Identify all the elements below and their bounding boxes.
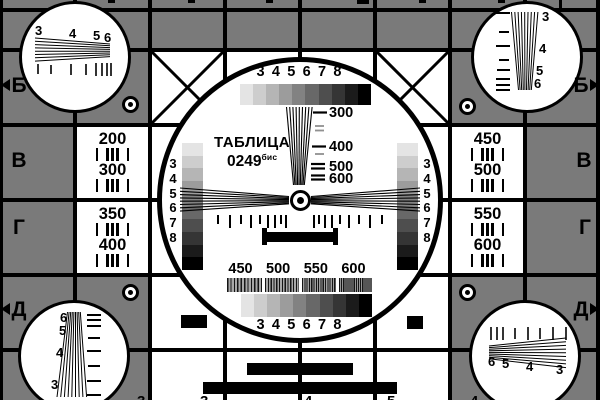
- central-vertical-wedge: [287, 107, 313, 185]
- edge-digit-stub: [559, 0, 562, 10]
- central-left-wedge: [180, 188, 289, 211]
- resolution-ticks-minor: [315, 126, 324, 154]
- edge-digit-stub: [188, 0, 195, 3]
- corner-wedge-bottom-right: [489, 338, 566, 368]
- edge-digit: 4: [304, 394, 312, 400]
- resolution-ticks: [311, 113, 327, 180]
- edge-digit-stub: [419, 0, 426, 3]
- row-letter-left: Д: [8, 299, 30, 320]
- edge-digit: 4: [470, 394, 478, 400]
- row-letter-right: В: [573, 150, 595, 171]
- edge-digit: 3: [200, 394, 208, 400]
- corner-ticks-bottom-right: [491, 327, 566, 340]
- right-arrow-icon: [590, 79, 599, 91]
- row-letter-right: Г: [574, 217, 596, 238]
- right-arrow-icon: [590, 303, 599, 315]
- edge-digit-stub: [357, 0, 369, 4]
- central-right-wedge: [311, 188, 420, 211]
- black-mark-left: [181, 315, 207, 328]
- corner-ticks-top-left: [38, 63, 111, 76]
- bottom-short-bar: [247, 363, 353, 375]
- tv-test-card: 3 4 5 6 7 8 ТАБЛИЦА 0249бис 300 400 500 …: [0, 0, 600, 400]
- row-letter-left: Г: [8, 217, 30, 238]
- edge-digit-stub: [266, 0, 273, 3]
- edge-digit-stub: [498, 0, 505, 3]
- black-mark-right: [407, 316, 423, 329]
- edge-digit: 5: [387, 394, 395, 400]
- row-letter-left: Б: [8, 75, 30, 96]
- corner-ticks-bottom-left: [87, 315, 101, 395]
- bottom-long-bar: [203, 382, 397, 394]
- edge-digit: 3: [137, 394, 145, 400]
- edge-digit-stub: [108, 0, 115, 3]
- corner-ticks-top-right: [496, 13, 510, 90]
- corner-wedge-bottom-left: [57, 312, 87, 397]
- row-letter-right: Б: [570, 75, 592, 96]
- center-tick-row-left: [218, 215, 286, 228]
- center-tick-row-right: [314, 215, 382, 228]
- row-letter-left: В: [8, 150, 30, 171]
- row-letter-right: Д: [570, 299, 592, 320]
- corner-wedge-top-right: [512, 12, 538, 90]
- corner-wedge-top-left: [35, 38, 110, 61]
- wedge-lineart: [0, 0, 600, 400]
